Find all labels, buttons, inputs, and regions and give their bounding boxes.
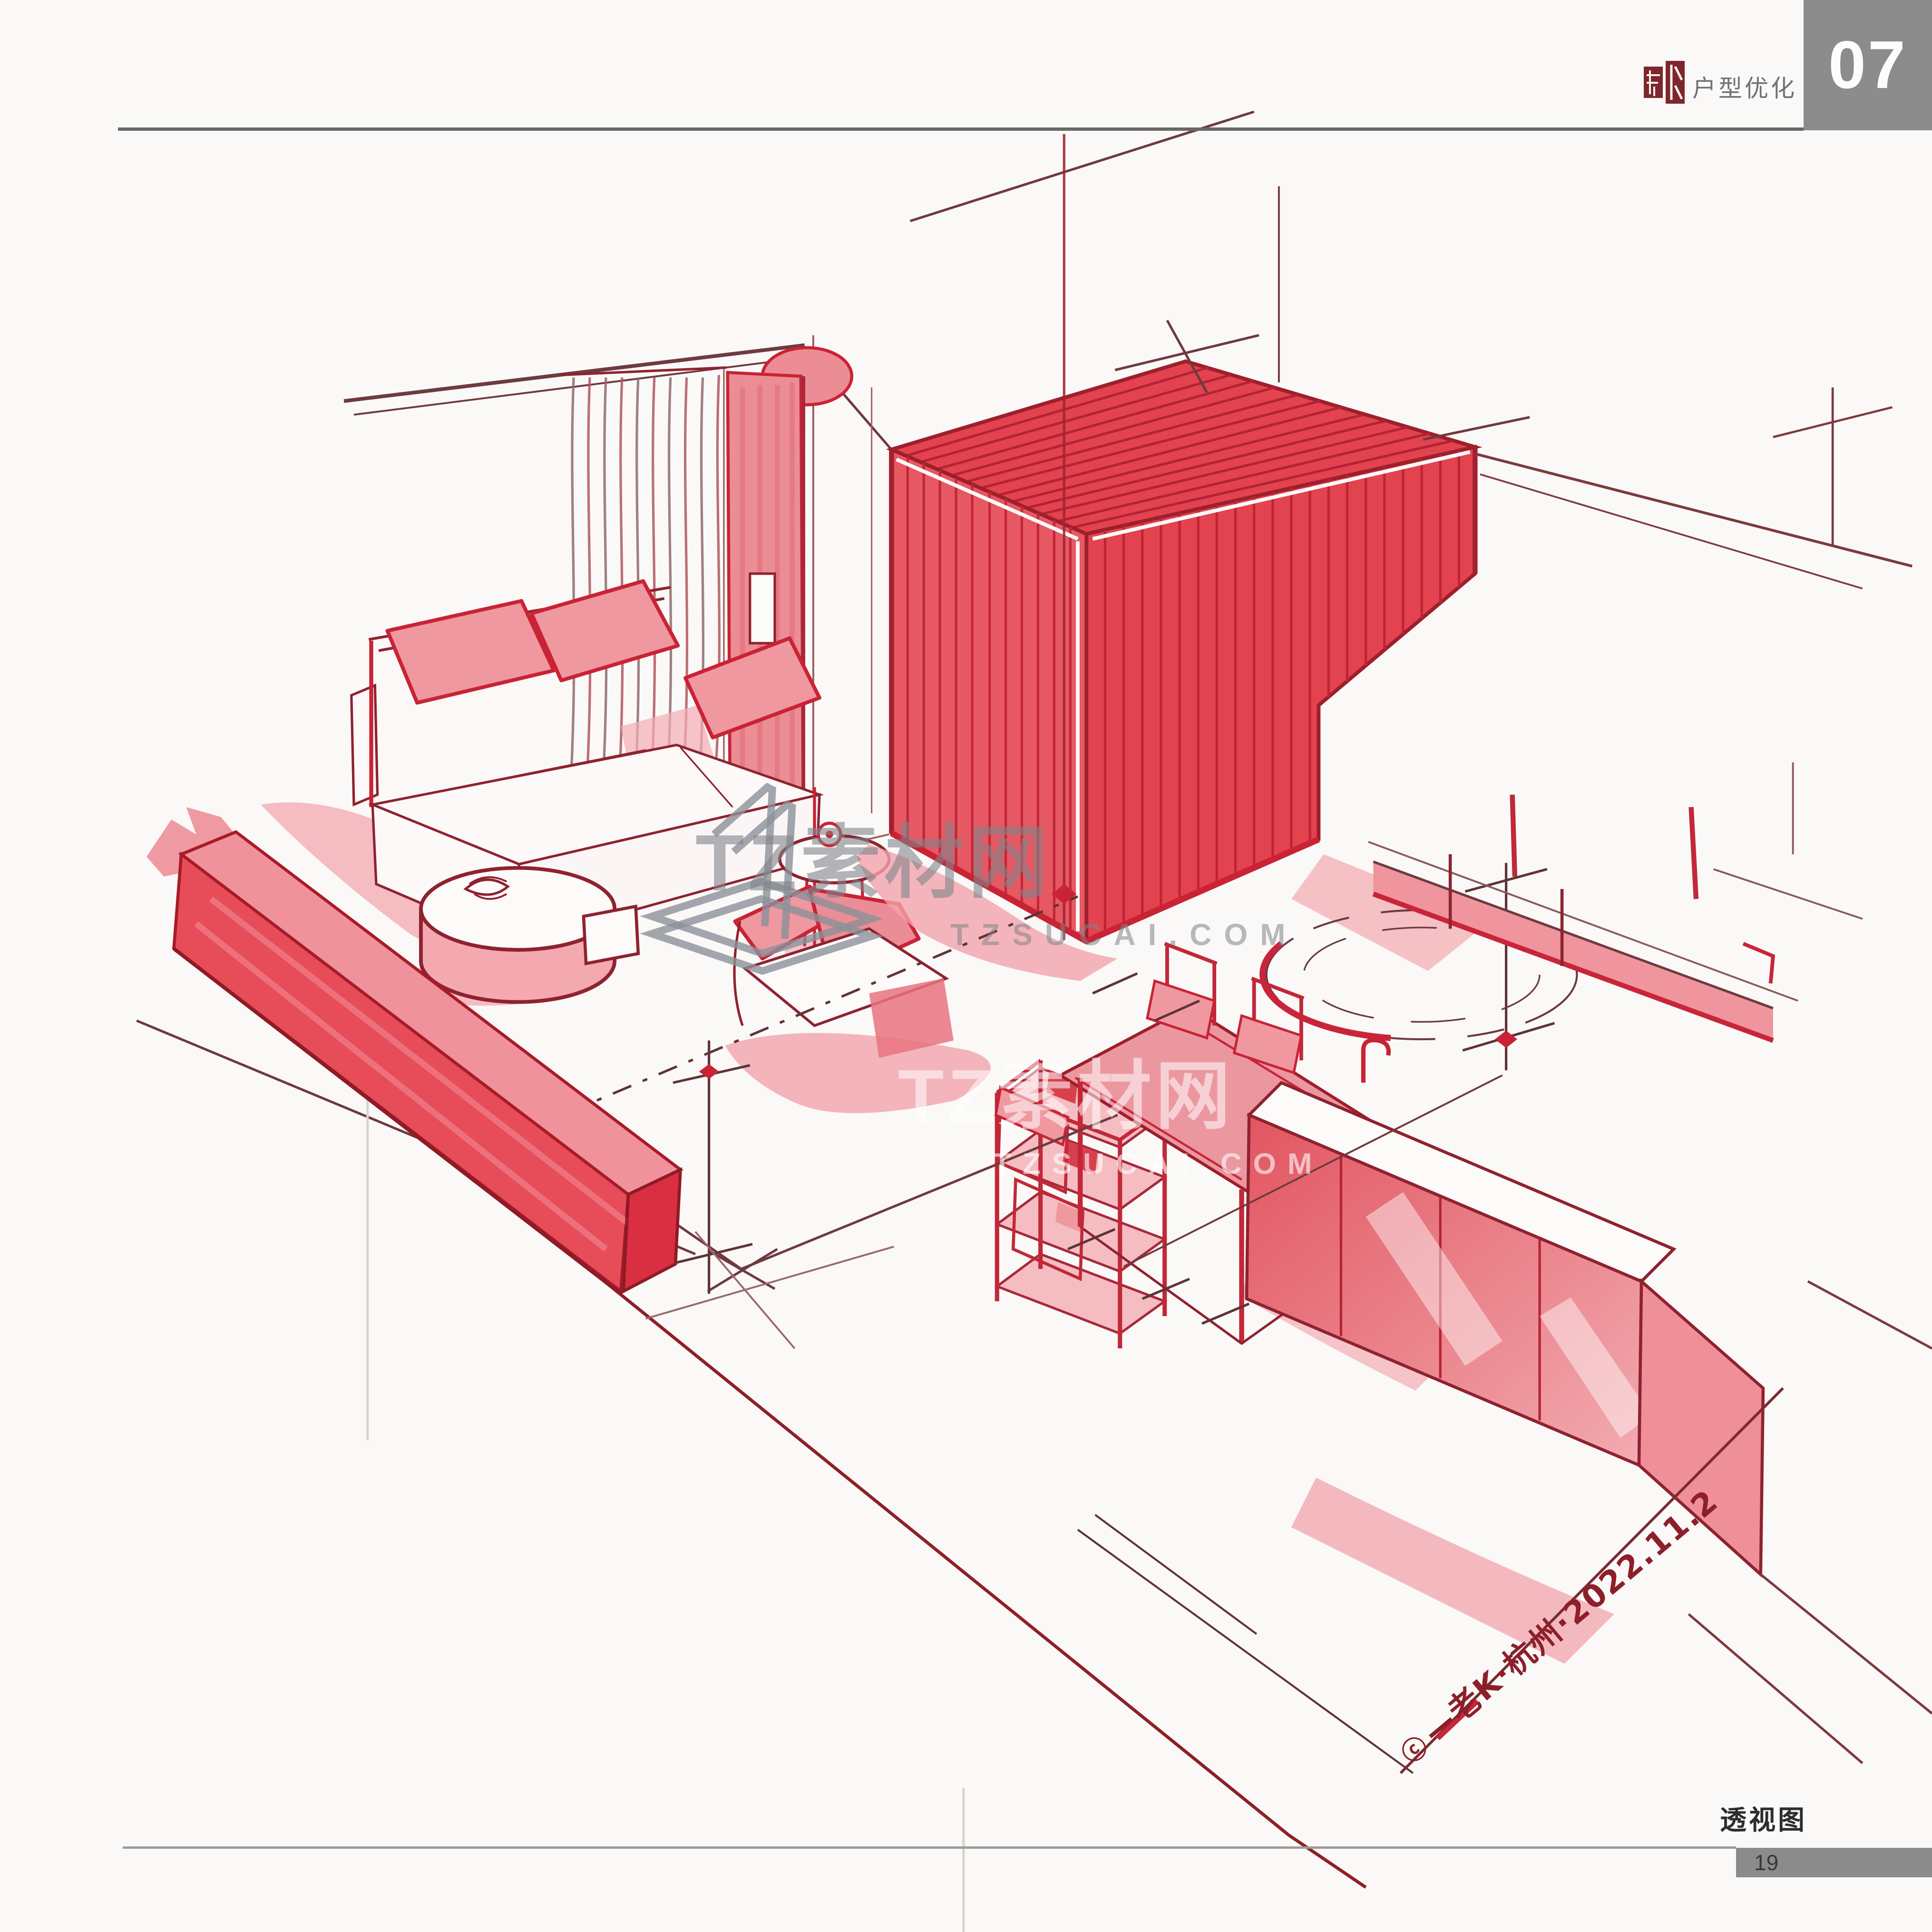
right-wall-shelf [1368,762,1863,1041]
brand-seal-logo [1644,61,1686,105]
footer-divider [123,1846,1736,1849]
watermark-title: TZ素材网 [695,798,1052,914]
faucet-icon [1363,1040,1388,1083]
section-label: 户型优化 [1692,74,1797,103]
table-notch [584,907,638,964]
header-divider [118,127,1804,131]
chapter-number-badge: 07 [1804,0,1932,130]
red-wall-panel [728,348,852,822]
page-number-bar: 19 [1736,1848,1932,1877]
right-counter [1247,1040,1932,1763]
chapter-number: 07 [1828,26,1907,104]
book-page: TZ素材网 TZSUCAI.COM TZ素材网 TZSUCAI.COM ⓒ—老K… [0,0,1932,1932]
page-number: 19 [1754,1850,1778,1875]
perspective-sketch [0,0,1932,1932]
watermark-domain-secondary: TZSUCAI.COM [993,1147,1324,1181]
panel-niche [750,574,775,643]
watermark-title-secondary: TZ素材网 [898,1035,1234,1144]
figure-caption: 透视图 [1720,1799,1807,1837]
watermark-domain: TZSUCAI.COM [950,917,1298,952]
